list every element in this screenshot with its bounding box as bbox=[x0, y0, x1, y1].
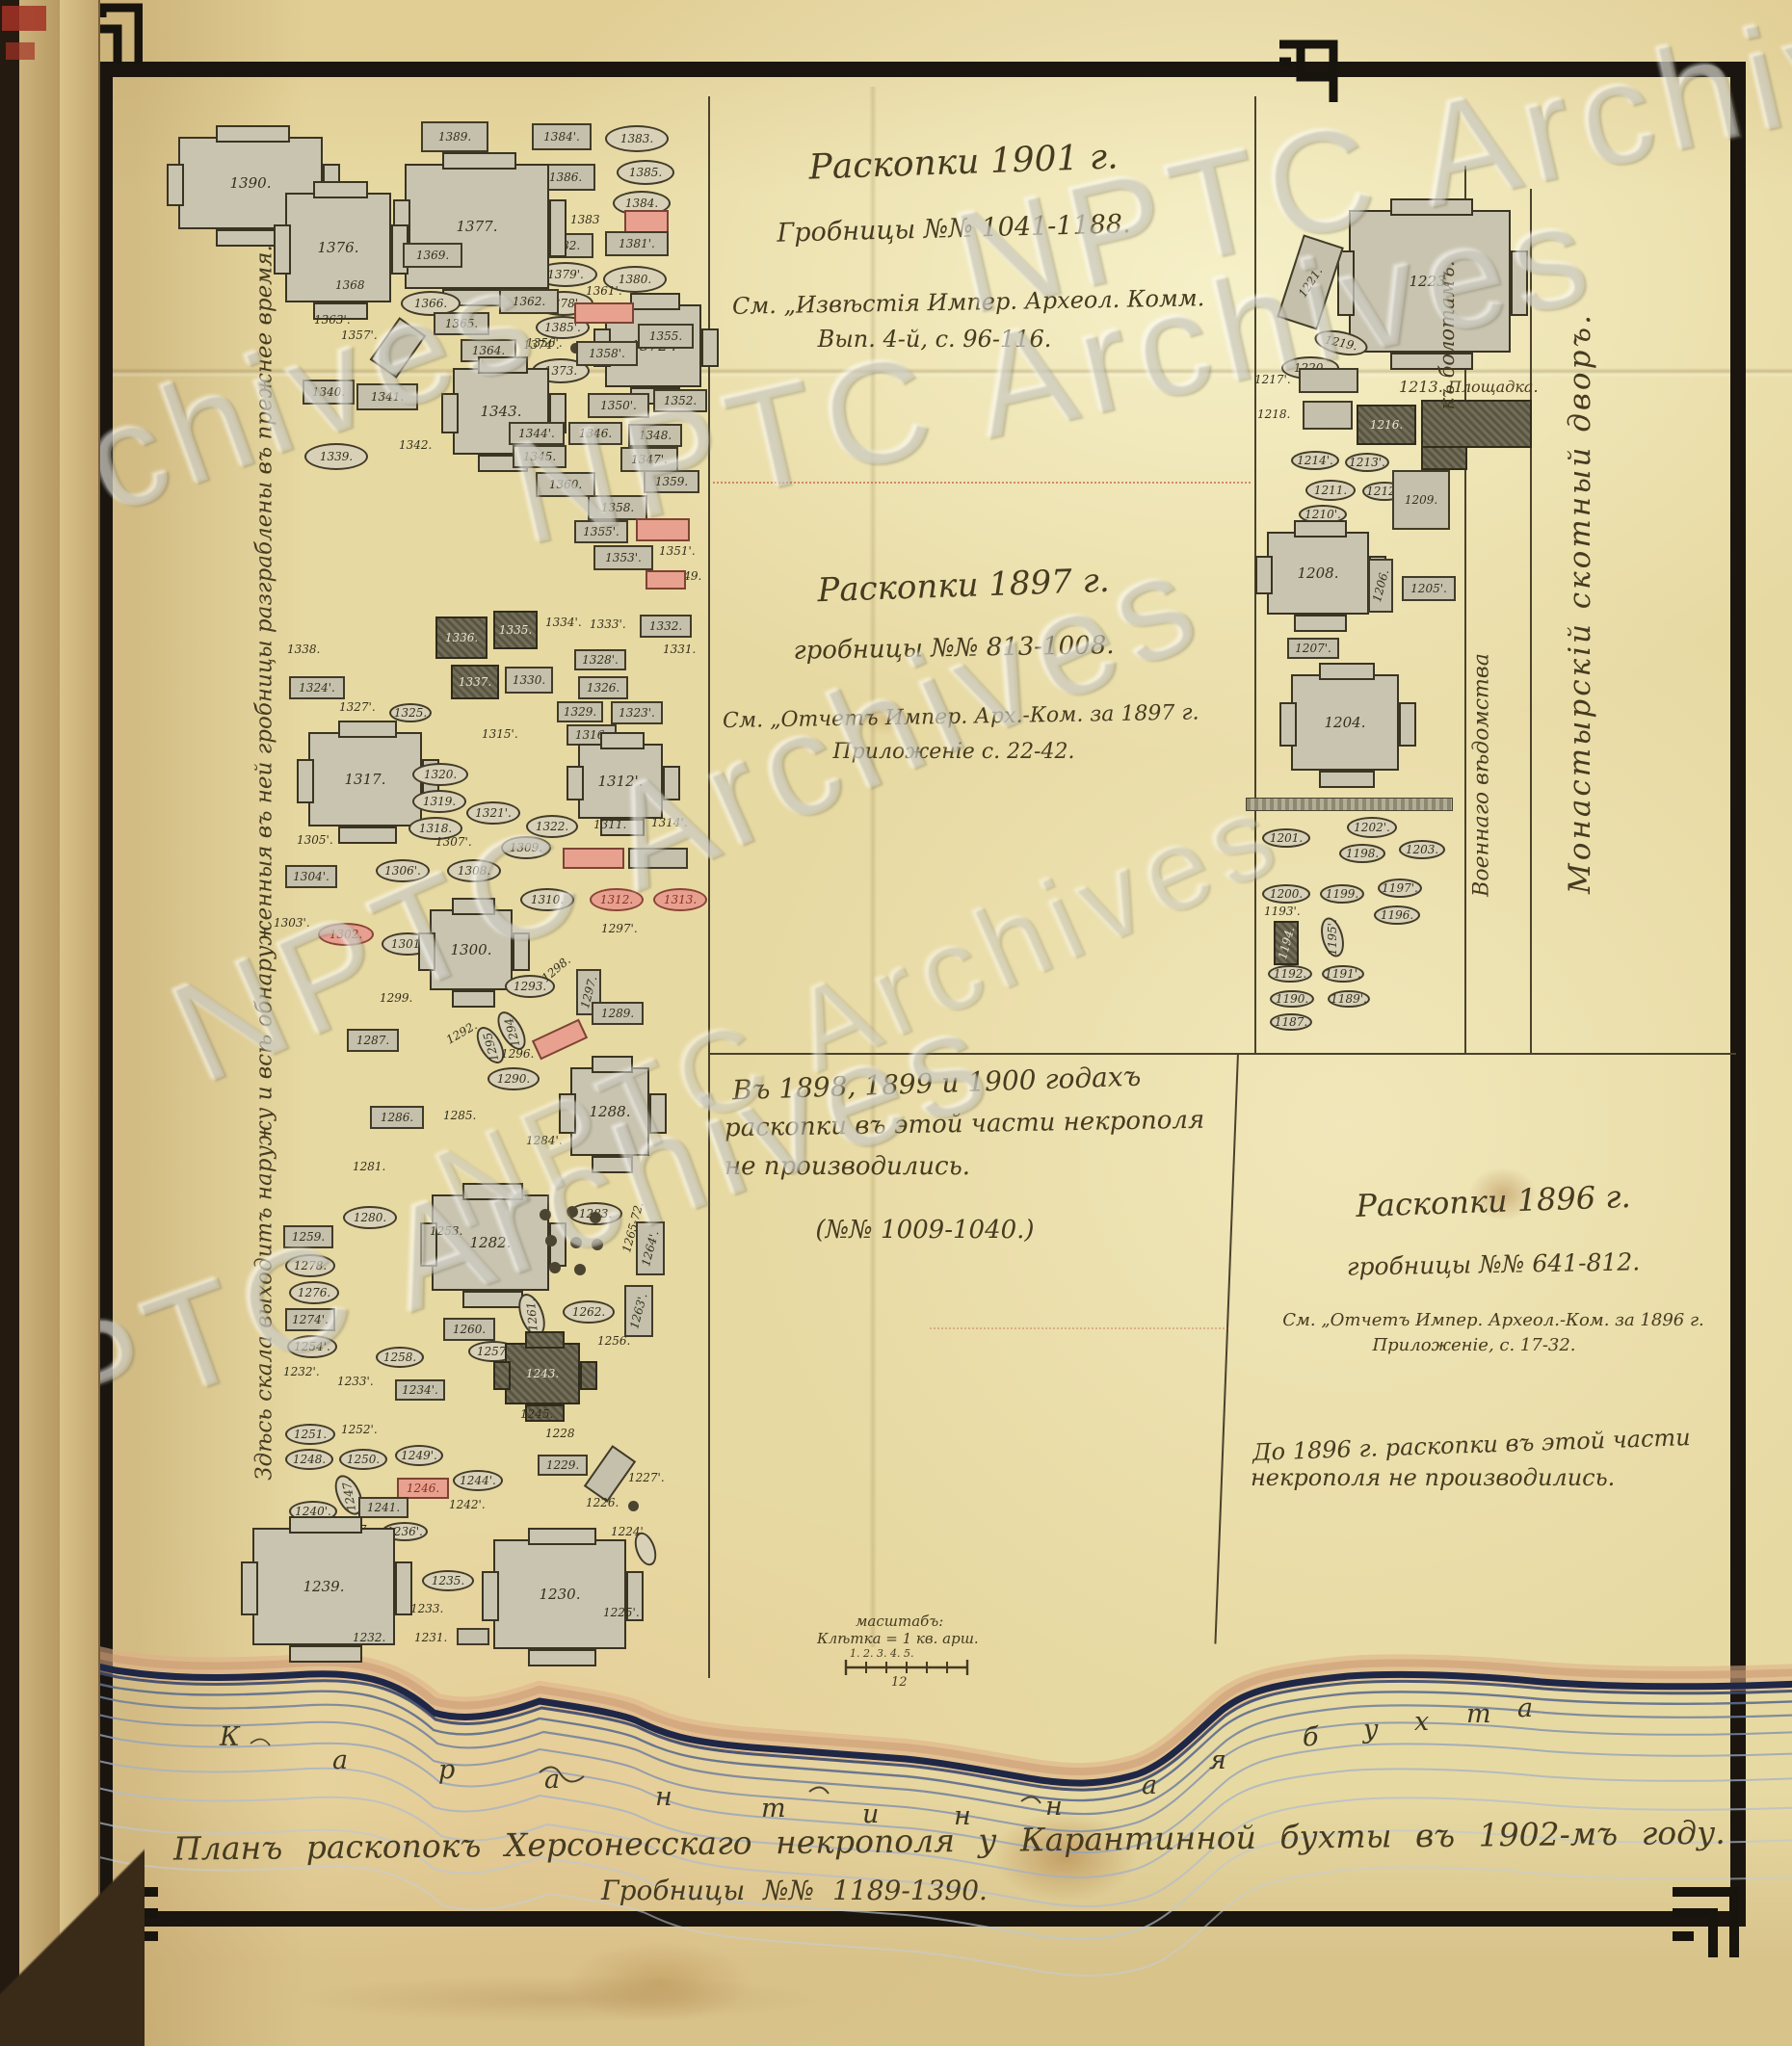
area-label-1213: 1213. Площадка. bbox=[1399, 378, 1539, 396]
bay-name-letter: т bbox=[1466, 1699, 1491, 1729]
plot-number: 1205'. bbox=[1410, 583, 1447, 594]
plot-number: 1288. bbox=[590, 1105, 631, 1119]
plot-number: 1381'. bbox=[619, 238, 655, 249]
plot-1287: 1287. bbox=[347, 1029, 399, 1052]
plot-1284: 1284'. bbox=[526, 1135, 563, 1146]
plot-1263: 1263'. bbox=[624, 1285, 653, 1337]
plot-1355: 1355. bbox=[638, 324, 694, 349]
plot-number: 1332. bbox=[649, 620, 682, 632]
plot-number: 1278. bbox=[294, 1260, 327, 1272]
plot-wing bbox=[482, 1571, 499, 1621]
plot-number: 1274'. bbox=[292, 1314, 329, 1325]
plot-number: 1199. bbox=[1326, 888, 1358, 900]
plot-number: 1377. bbox=[457, 220, 498, 234]
plot-number: 1323'. bbox=[619, 707, 655, 719]
plot-shape bbox=[457, 1628, 489, 1645]
plot-1192: 1192. bbox=[1268, 965, 1312, 983]
plot-1206: 1206. bbox=[1368, 559, 1393, 613]
plot-number: 1347'. bbox=[631, 454, 668, 465]
plot-number: 1346. bbox=[579, 428, 612, 439]
plot-number: 1260. bbox=[453, 1324, 486, 1335]
bay-name-letter: и bbox=[862, 1799, 879, 1829]
plot-1213: 1213'. bbox=[1345, 453, 1389, 472]
plot-number: 1196. bbox=[1381, 909, 1413, 921]
plot-1350: 1350'. bbox=[588, 393, 649, 418]
plot-1311: 1311. bbox=[593, 819, 626, 830]
plot-1345: 1345. bbox=[513, 445, 567, 468]
plot-1190: 1190. bbox=[1270, 990, 1314, 1008]
plot-number: 1246. bbox=[407, 1482, 439, 1494]
plot-1195: 1195'. bbox=[1317, 915, 1348, 959]
plot-wing bbox=[528, 1649, 596, 1666]
plot-1332: 1332. bbox=[640, 615, 692, 638]
plot-number: 1262. bbox=[572, 1306, 605, 1318]
plot-number: 1390. bbox=[230, 176, 272, 191]
plot-1310: 1310. bbox=[520, 888, 574, 911]
plot-number: 1366. bbox=[414, 298, 447, 309]
plot-number: 1357'. bbox=[341, 329, 378, 341]
plot-1384: 1384'. bbox=[532, 123, 592, 150]
plot-1333: 1333'. bbox=[590, 618, 626, 630]
frame-top bbox=[92, 62, 1746, 77]
plot-wing bbox=[452, 898, 495, 915]
plot-number: 1305'. bbox=[297, 834, 333, 846]
plot-1204: 1204. bbox=[1291, 674, 1399, 771]
plot-number: 1304'. bbox=[293, 871, 329, 882]
plot-number: 1204. bbox=[1325, 716, 1366, 730]
plot-number: 1383 bbox=[570, 214, 600, 225]
plot-1302: 1302. bbox=[318, 923, 374, 946]
plot-number: 1284'. bbox=[526, 1135, 563, 1146]
fold-crease-vertical bbox=[869, 87, 877, 1647]
plot-1352: 1352. bbox=[653, 389, 707, 412]
plot-1308: 1308. bbox=[447, 859, 501, 882]
plot-number: 1203. bbox=[1406, 844, 1438, 855]
plot-1203: 1203. bbox=[1399, 840, 1445, 859]
road-label-military: Военнаго вѣдомства bbox=[1470, 573, 1494, 978]
plot-number: 1312. bbox=[600, 894, 633, 905]
plot-1325: 1325. bbox=[389, 703, 432, 722]
plot-number: 1241. bbox=[367, 1502, 400, 1513]
plot-wing bbox=[600, 732, 645, 749]
red-dotted-line-lower bbox=[930, 1327, 1228, 1329]
plot-1319: 1319. bbox=[412, 790, 466, 813]
plot-shape bbox=[1303, 401, 1353, 430]
plot-1321: 1321'. bbox=[466, 801, 520, 825]
plot-number: 1321'. bbox=[475, 807, 512, 819]
plot-number: 1322. bbox=[536, 821, 568, 832]
plot-1218: 1218. bbox=[1257, 408, 1290, 420]
plot-number: 1208. bbox=[1298, 566, 1339, 581]
plot-number: 1341. bbox=[371, 391, 404, 403]
plot-number: 1197'. bbox=[1382, 882, 1418, 894]
plot-1340: 1340. bbox=[303, 380, 355, 405]
plot-1356: 1356'. bbox=[526, 337, 563, 349]
plot-number: 1350'. bbox=[600, 400, 637, 411]
plot-number: 1363'. bbox=[314, 314, 351, 326]
plot-1232: 1232'. bbox=[283, 1366, 320, 1377]
plot-wing bbox=[241, 1561, 258, 1615]
plot-number: 1292. bbox=[444, 1019, 479, 1046]
plot-1362: 1362. bbox=[499, 289, 559, 314]
scale-bar: масштабъ: Клѣтка = 1 кв. арш. 1. 2. 3. 4… bbox=[800, 1613, 1012, 1690]
plot-wing bbox=[297, 759, 314, 802]
plot-1231: 1231. bbox=[414, 1632, 447, 1643]
plot-number: 1219. bbox=[1324, 334, 1358, 353]
plot-number: 1209. bbox=[1405, 494, 1437, 506]
plot-number: 1210'. bbox=[1304, 509, 1341, 520]
plot-shape bbox=[1299, 368, 1358, 393]
plot-number: 1298. bbox=[540, 954, 572, 984]
plot-1214: 1214'. bbox=[1291, 451, 1339, 470]
plot-wing bbox=[493, 1361, 511, 1390]
plot-shape bbox=[570, 1237, 582, 1248]
plot-1357: 1357'. bbox=[341, 329, 378, 341]
greek-key-ornament-top bbox=[1274, 39, 1341, 110]
road-line-east bbox=[1530, 189, 1532, 1053]
plot-number: 1327'. bbox=[339, 701, 376, 713]
plot-1323: 1323'. bbox=[611, 701, 663, 724]
plot-number: 1226. bbox=[586, 1497, 619, 1508]
plot-wing bbox=[442, 152, 516, 170]
plot-1346: 1346. bbox=[568, 422, 622, 445]
plot-number: 1247. bbox=[340, 1478, 357, 1512]
plot-number: 1256. bbox=[597, 1335, 630, 1347]
plot-wing bbox=[462, 1291, 523, 1308]
plot-1300: 1300. bbox=[430, 909, 513, 990]
plot-number: 1385. bbox=[629, 167, 662, 178]
plot-1314: 1314'. bbox=[651, 817, 688, 828]
plot-wing bbox=[1255, 556, 1273, 594]
note-1897-line1: гробницы №№ 813-1008. bbox=[761, 631, 1146, 667]
plot-wing bbox=[289, 1516, 362, 1534]
plot-number: 1232'. bbox=[283, 1366, 320, 1377]
plot-number: 1239. bbox=[303, 1580, 345, 1594]
plot-1207: 1207'. bbox=[1287, 638, 1339, 659]
plot-1198: 1198. bbox=[1339, 844, 1385, 863]
plot-1223: 1223. bbox=[1349, 210, 1511, 353]
plot-1256: 1256. bbox=[597, 1335, 630, 1347]
plot-1328: 1328'. bbox=[574, 649, 626, 670]
plot-number: 1216. bbox=[1370, 419, 1403, 431]
plot-number: 1317. bbox=[345, 773, 386, 787]
plot-number: 1342. bbox=[399, 439, 432, 451]
plot-number: 1308. bbox=[458, 865, 490, 877]
plot-1264: 1264'. bbox=[636, 1221, 665, 1275]
plot-number: 1361'. bbox=[586, 285, 622, 297]
plot-1368: 1368 bbox=[335, 279, 365, 291]
plot-1233: 1233'. bbox=[337, 1376, 374, 1387]
red-stamp-fragment bbox=[6, 42, 35, 60]
plot-1342: 1342. bbox=[399, 439, 432, 451]
plot-1221: 1221. bbox=[1277, 234, 1344, 329]
plot-1335: 1335. bbox=[493, 611, 538, 649]
note-1898-line2: раскопки въ этой части некрополя bbox=[725, 1106, 1205, 1143]
plot-number: 1217'. bbox=[1254, 374, 1291, 385]
plot-1353: 1353'. bbox=[593, 545, 653, 570]
plot-1211: 1211. bbox=[1305, 480, 1356, 501]
plot-number: 1190. bbox=[1276, 993, 1308, 1005]
plot-number: 1285. bbox=[443, 1110, 476, 1121]
plot-number: 1376. bbox=[318, 241, 359, 255]
plot-wing bbox=[1337, 250, 1355, 315]
plot-number: 1389. bbox=[438, 131, 471, 143]
plot-wing bbox=[1390, 353, 1473, 370]
plot-number: 1258. bbox=[383, 1351, 416, 1363]
plot-1351: 1351'. bbox=[659, 545, 696, 557]
plot-1344: 1344'. bbox=[509, 422, 565, 445]
plot-number: 1326. bbox=[587, 682, 619, 694]
plot-number: 1300. bbox=[451, 943, 492, 957]
plot-wing bbox=[549, 199, 567, 256]
plot-1381: 1381'. bbox=[605, 231, 669, 256]
plot-shape bbox=[1246, 798, 1453, 811]
plot-1276: 1276. bbox=[289, 1281, 339, 1304]
plot-number: 1355'. bbox=[583, 526, 619, 538]
plot-1202: 1202'. bbox=[1347, 817, 1397, 838]
plot-number: 1355. bbox=[649, 330, 682, 342]
plot-number: 1352. bbox=[664, 395, 697, 407]
plot-number: 1251. bbox=[294, 1429, 327, 1440]
plot-1246: 1246. bbox=[397, 1478, 449, 1499]
plot-1189: 1189'. bbox=[1328, 990, 1370, 1008]
plot-number: 1245. bbox=[520, 1408, 553, 1420]
plot-1260: 1260. bbox=[443, 1318, 495, 1341]
note-pre1896-line2: некрополя не производились. bbox=[1251, 1464, 1615, 1491]
plot-wing bbox=[592, 1056, 633, 1073]
scale-label2: Клѣтка = 1 кв. арш. bbox=[817, 1630, 1012, 1647]
plot-1341: 1341. bbox=[356, 383, 418, 410]
plot-shape bbox=[549, 1262, 561, 1273]
plot-1377: 1377. bbox=[405, 164, 549, 289]
plot-number: 1286. bbox=[381, 1112, 413, 1123]
left-margin-note-line2: въ ней гробницы разграблены въ прежнее в… bbox=[251, 245, 277, 838]
plot-1334: 1334'. bbox=[545, 616, 582, 628]
plot-number: 1338. bbox=[287, 643, 320, 655]
plot-number: 1294. bbox=[502, 1013, 521, 1048]
plot-1361: 1361'. bbox=[586, 285, 622, 297]
plot-1358: 1358'. bbox=[576, 341, 638, 366]
right-margin-note: Монастырскій скотный дворъ. bbox=[1563, 247, 1597, 959]
plot-wing bbox=[1399, 702, 1416, 747]
plot-1191: 1191'. bbox=[1322, 965, 1364, 983]
plot-number: 1339. bbox=[320, 451, 353, 462]
plot-wing bbox=[1319, 771, 1375, 788]
plot-number: 1225'. bbox=[603, 1607, 640, 1618]
plot-1234: 1234'. bbox=[395, 1379, 445, 1401]
plot-shape bbox=[545, 1235, 557, 1246]
note-1898-line1: Въ 1898, 1899 и 1900 годахъ bbox=[732, 1061, 1142, 1107]
bay-name-letter: у bbox=[1363, 1715, 1379, 1744]
plot-number: 1379'. bbox=[547, 269, 584, 280]
plot-number: 1189'. bbox=[1331, 993, 1367, 1005]
plot-1385: 1385. bbox=[617, 160, 674, 185]
plot-wing bbox=[1294, 520, 1347, 538]
plot-1229: 1229. bbox=[538, 1455, 588, 1476]
plot-number: 1253. bbox=[430, 1225, 462, 1237]
plot-shape bbox=[592, 1239, 603, 1250]
rule-horizontal-mid bbox=[708, 1053, 1736, 1055]
plot-1363: 1363'. bbox=[314, 314, 351, 326]
bay-name-letter: а bbox=[332, 1745, 348, 1775]
plot-number: 1244'. bbox=[460, 1475, 496, 1486]
plot-number: 1359. bbox=[655, 476, 688, 487]
plot-1289: 1289. bbox=[592, 1002, 644, 1025]
plot-number: 1302. bbox=[329, 929, 362, 940]
plot-1348: 1348. bbox=[628, 424, 682, 447]
plot-1389: 1389. bbox=[421, 121, 488, 152]
plot-1258: 1258. bbox=[376, 1347, 424, 1368]
plot-shape bbox=[636, 518, 690, 541]
plot-number: 1312'. bbox=[597, 774, 643, 789]
plot-number: 1191'. bbox=[1325, 968, 1361, 980]
plot-number: 1250. bbox=[347, 1454, 380, 1465]
scale-total: 12 bbox=[891, 1675, 1012, 1690]
plot-number: 1297'. bbox=[601, 923, 638, 934]
plot-number: 1213'. bbox=[1349, 457, 1385, 468]
plot-1274: 1274'. bbox=[285, 1308, 335, 1331]
scale-label1: масштабъ: bbox=[856, 1613, 1012, 1630]
plot-number: 1307'. bbox=[435, 836, 472, 848]
plot-1278: 1278. bbox=[285, 1254, 335, 1277]
plot-number: 1207'. bbox=[1295, 643, 1331, 654]
plot-wing bbox=[1294, 615, 1347, 632]
plot-number: 1261. bbox=[525, 1298, 540, 1331]
plot-1298: 1298. bbox=[540, 954, 572, 984]
plot-1253: 1253. bbox=[430, 1225, 462, 1237]
plot-number: 1254'. bbox=[294, 1341, 330, 1352]
plot-wing bbox=[525, 1331, 565, 1349]
plot-1326: 1326. bbox=[578, 676, 628, 699]
plot-1208: 1208. bbox=[1267, 532, 1369, 615]
plot-1286: 1286. bbox=[370, 1106, 424, 1129]
note-1897-line2: См. „Отчетъ Импер. Арх.-Ком. за 1897 г. bbox=[723, 701, 1175, 733]
road-label-to-marsh: къ болотамъ. bbox=[1436, 229, 1459, 441]
plot-wing bbox=[663, 766, 680, 801]
plot-1330: 1330. bbox=[505, 667, 553, 694]
plot-wing bbox=[338, 826, 397, 844]
plot-number: 1280. bbox=[354, 1212, 386, 1223]
plot-number: 1227'. bbox=[628, 1472, 665, 1483]
plot-1205: 1205'. bbox=[1402, 576, 1456, 601]
plot-1242: 1242'. bbox=[449, 1499, 486, 1510]
plot-1383: 1383. bbox=[605, 125, 669, 152]
plot-1358: 1358. bbox=[588, 495, 647, 520]
bay-name-letter: К bbox=[220, 1722, 240, 1752]
plot-number: 1335. bbox=[499, 624, 532, 636]
plot-number: 1330. bbox=[513, 674, 545, 686]
plot-1201: 1201. bbox=[1262, 828, 1310, 848]
plot-wing bbox=[289, 1645, 362, 1663]
plot-number: 1384. bbox=[625, 197, 658, 209]
plot-shape bbox=[628, 848, 688, 869]
plot-1292: 1292. bbox=[444, 1019, 479, 1046]
plot-1259: 1259. bbox=[283, 1225, 333, 1248]
plot-number: 1344'. bbox=[518, 428, 555, 439]
plot-1306: 1306'. bbox=[376, 859, 430, 882]
plot-number: 1230. bbox=[540, 1587, 581, 1602]
plot-number: 1187. bbox=[1275, 1016, 1307, 1028]
plot-number: 1206. bbox=[1371, 568, 1390, 603]
plot-1383: 1383 bbox=[570, 214, 600, 225]
plot-shape bbox=[563, 848, 624, 869]
plot-number: 1194. bbox=[1277, 926, 1296, 960]
plot-1227: 1227'. bbox=[628, 1472, 665, 1483]
red-stamp-fragment bbox=[2, 6, 46, 31]
plot-1320: 1320. bbox=[412, 763, 468, 786]
plot-wing bbox=[313, 181, 368, 198]
plot-wing bbox=[1279, 702, 1297, 747]
divider-lower-right bbox=[1214, 1053, 1239, 1644]
plot-number: 1290. bbox=[497, 1073, 530, 1085]
plot-number: 1336. bbox=[445, 632, 478, 643]
subtitle: Гробницы №№ 1189-1390. bbox=[479, 1875, 1110, 1906]
plot-1217: 1217'. bbox=[1254, 374, 1291, 385]
plot-number: 1348. bbox=[639, 430, 672, 441]
plot-number: 1360. bbox=[549, 479, 582, 490]
plot-shape bbox=[646, 570, 686, 590]
plot-1225: 1225'. bbox=[603, 1607, 640, 1618]
plot-1232: 1232. bbox=[353, 1632, 385, 1643]
plot-number: 1248. bbox=[293, 1454, 326, 1465]
plot-wing bbox=[528, 1528, 596, 1545]
note-1898-line3: не производились. bbox=[725, 1152, 970, 1181]
plot-1281: 1281. bbox=[353, 1161, 385, 1172]
plot-number: 1201. bbox=[1270, 832, 1303, 844]
plot-number: 1259. bbox=[292, 1231, 325, 1243]
plot-1245: 1245. bbox=[520, 1408, 553, 1420]
plot-number: 1295. bbox=[481, 1028, 500, 1062]
plot-wing bbox=[338, 721, 397, 738]
plot-number: 1235. bbox=[432, 1575, 464, 1587]
plot-number: 1369. bbox=[416, 249, 449, 261]
scale-ruler bbox=[844, 1660, 969, 1675]
note-1901-line3: Вып. 4-й, с. 96-116. bbox=[751, 326, 1118, 353]
plot-1280: 1280. bbox=[343, 1206, 397, 1229]
plot-number: 1325. bbox=[394, 707, 427, 719]
bay-name-letter: я bbox=[1209, 1745, 1226, 1775]
plot-1226: 1226. bbox=[586, 1497, 619, 1508]
plot-shape bbox=[628, 1501, 639, 1511]
plot-shape bbox=[574, 302, 634, 324]
plot-1193: 1193'. bbox=[1264, 905, 1301, 917]
plot-wing bbox=[216, 125, 290, 143]
plot-number: 1232. bbox=[353, 1632, 385, 1643]
plot-wing bbox=[567, 766, 584, 801]
plot-1285: 1285. bbox=[443, 1110, 476, 1121]
plot-number: 1233. bbox=[410, 1603, 443, 1614]
left-margin-note-line1: Здѣсь скала выходитъ наружу и всѣ обнару… bbox=[251, 846, 277, 1481]
plot-number: 1310. bbox=[531, 894, 564, 905]
plot-wing bbox=[1390, 198, 1473, 216]
bay-name-letter: а bbox=[1142, 1771, 1157, 1800]
plot-wing bbox=[1511, 250, 1528, 315]
red-dotted-line-upper bbox=[713, 482, 1251, 484]
plot-wing bbox=[559, 1093, 576, 1135]
plot-shape bbox=[574, 1264, 586, 1275]
plot-number: 1193'. bbox=[1264, 905, 1301, 917]
plot-1307: 1307'. bbox=[435, 836, 472, 848]
note-1897-line3: Приложеніе с. 22-42. bbox=[771, 740, 1137, 764]
plot-number: 1320. bbox=[424, 769, 457, 780]
plot-1288: 1288. bbox=[570, 1067, 649, 1156]
plot-wing bbox=[441, 393, 459, 433]
plot-1235: 1235. bbox=[422, 1570, 474, 1591]
plot-wing bbox=[167, 164, 184, 206]
plot-number: 1276. bbox=[298, 1287, 330, 1298]
plot-number: 1242'. bbox=[449, 1499, 486, 1510]
plot-1304: 1304'. bbox=[285, 865, 337, 888]
